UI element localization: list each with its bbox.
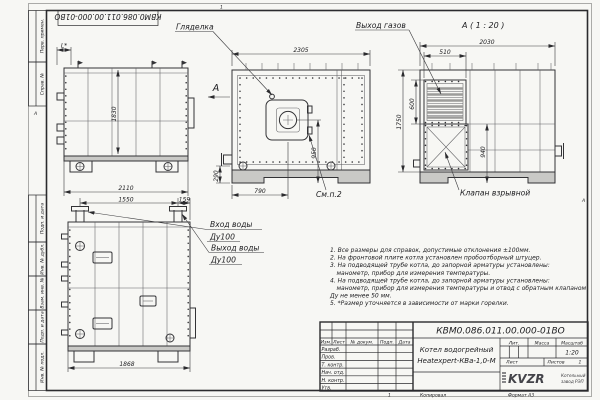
stamp-col-6: Подп. и дата <box>40 311 46 342</box>
note-line: манометр, прибор для измерения температу… <box>337 285 587 292</box>
label-view-a: А ( 1 : 20 ) <box>461 21 504 30</box>
tb-product-1: Котел водогрейный <box>420 346 494 354</box>
th-izm: Изм. <box>321 340 332 346</box>
water-outlet-pipe <box>170 207 187 212</box>
stamp-col-4: Инв. № дубл. <box>40 243 46 274</box>
company-logo: KVZR <box>508 372 545 386</box>
stamp-col-7: Инв. № подл. <box>40 351 46 383</box>
view-direction-arrow: А <box>208 83 230 97</box>
tb-lit-label: Лит. <box>508 341 520 347</box>
tb-massa-label: Масса <box>535 341 550 347</box>
sheet-frame: Перв. примен. Справ. № Подп. и дата Инв.… <box>29 4 592 397</box>
note-line: 2. На фронтовой плите котла установлен п… <box>330 255 542 262</box>
left-stamp-band: Перв. примен. Справ. № Подп. и дата Инв.… <box>29 11 47 391</box>
th-list: Лист <box>332 340 345 346</box>
stamp-col-2: Справ. № <box>40 73 46 96</box>
tb-product-2: Heatexpert-КВа-1,0-М <box>417 357 495 365</box>
tb-scale-value: 1:20 <box>565 350 579 357</box>
logo-coil-icon <box>502 373 506 382</box>
side-view: L* 1830 2110 <box>57 43 194 197</box>
row-nkontr: Н. контр. <box>322 378 345 384</box>
label-gas-outlet: Выход газов <box>356 21 406 30</box>
dim-side-width: 2110 <box>118 185 133 192</box>
tb-listov-value: 1 <box>579 360 582 366</box>
dim-rear-width: 2030 <box>479 39 494 46</box>
stamp-col-1: Перв. примен. <box>40 19 46 54</box>
row-prov: Пров. <box>322 355 336 361</box>
bottom-sheet-no: 1 <box>388 393 391 399</box>
tb-doc-number: КВМ0.086.011.00.000-01ВО <box>436 327 564 337</box>
bottom-margin: 1 Копировал Формат А3 <box>388 393 534 399</box>
company-name-1: Котельный <box>561 373 586 378</box>
format-label: Формат А3 <box>508 393 534 399</box>
notes-block: 1. Все размеры для справок, допустимые о… <box>329 247 587 307</box>
tb-scale-label: Масштаб <box>561 341 583 347</box>
note-line: Ду не менее 50 мм. <box>329 293 392 300</box>
stamp-col-5: Взам. инв. № <box>40 277 46 308</box>
th-doc: № докум. <box>350 340 374 346</box>
note-line: 1. Все размеры для справок, допустимые о… <box>330 247 530 254</box>
label-see-note: См.п.2 <box>316 190 342 199</box>
dim-back-pipes: 1550 <box>118 197 133 204</box>
dim-front-burner-x: 790 <box>254 188 266 195</box>
dim-side-burner: L* <box>61 43 67 50</box>
note-line: 5. *Размер уточняется в зависимости от м… <box>330 300 509 307</box>
stamp-col-3: Подп. и дата <box>40 203 46 234</box>
label-water-outlet-dn: Ду100 <box>210 256 236 265</box>
label-water-inlet-dn: Ду100 <box>209 233 235 242</box>
zone-mark-right: А <box>581 198 585 204</box>
tb-listov-label: Листов <box>546 360 564 366</box>
rear-view-a: А ( 1 : 20 ) 2030 510 600 1750 940 <box>355 21 564 198</box>
dim-rear-height: 1750 <box>396 114 403 129</box>
dim-front-width: 2305 <box>293 47 308 54</box>
dim-side-height: 1830 <box>111 106 118 121</box>
label-water-inlet: Вход воды <box>210 220 252 229</box>
drawing-canvas: Перв. примен. Справ. № Подп. и дата Инв.… <box>0 0 600 400</box>
th-podp: Подп. <box>380 340 394 346</box>
label-explosion-valve: Клапан взрывной <box>460 189 530 198</box>
label-water-outlet: Выход воды <box>211 244 259 253</box>
row-utv: Утв. <box>322 386 332 392</box>
kopiroval-label: Копировал <box>420 393 446 399</box>
dim-rear-outlet-w: 510 <box>439 49 451 56</box>
dim-back-edge: 159 <box>179 197 191 204</box>
drawing-sheet: Перв. примен. Справ. № Подп. и дата Инв.… <box>0 0 600 400</box>
view-arrow-letter: А <box>212 83 220 94</box>
front-view: 2305 790 950 290 Гляделка См.п.2 <box>175 23 370 200</box>
row-razrab: Разраб. <box>322 347 341 353</box>
dim-front-base: 290 <box>213 170 220 182</box>
zone-mark-top: 1 <box>220 5 223 11</box>
zone-mark-left: А <box>33 111 37 117</box>
title-block: Изм. Лист № докум. Подп. Дата Разраб. Пр… <box>320 322 588 392</box>
company-name-2: завод РЭП <box>561 379 584 384</box>
dim-rear-outlet-h: 600 <box>409 98 416 110</box>
note-line: 3. На подводящей трубе котла, до запорно… <box>330 262 550 269</box>
dim-back-width: 1868 <box>119 361 134 368</box>
top-doc-number: КВМ0.086.011.00.000-01ВО <box>54 12 161 21</box>
back-view: 1550 159 1868 Вход воды Ду100 Выход воды… <box>62 197 265 373</box>
dim-rear-valve: 940 <box>480 146 487 158</box>
th-data: Дата <box>398 340 411 346</box>
note-line: манометр, прибор для измерения температу… <box>337 270 491 277</box>
note-line: 4. На подводящей трубе котла, до запорно… <box>330 277 550 284</box>
label-sight-glass: Гляделка <box>176 23 214 32</box>
tb-list-label: Лист <box>505 360 518 366</box>
water-inlet-pipe <box>72 207 89 212</box>
row-tkontr: Т. контр. <box>322 362 344 368</box>
top-doc-number-box: КВМ0.086.011.00.000-01ВО <box>54 11 161 26</box>
row-nachotd: Нач. отд. <box>322 370 345 376</box>
